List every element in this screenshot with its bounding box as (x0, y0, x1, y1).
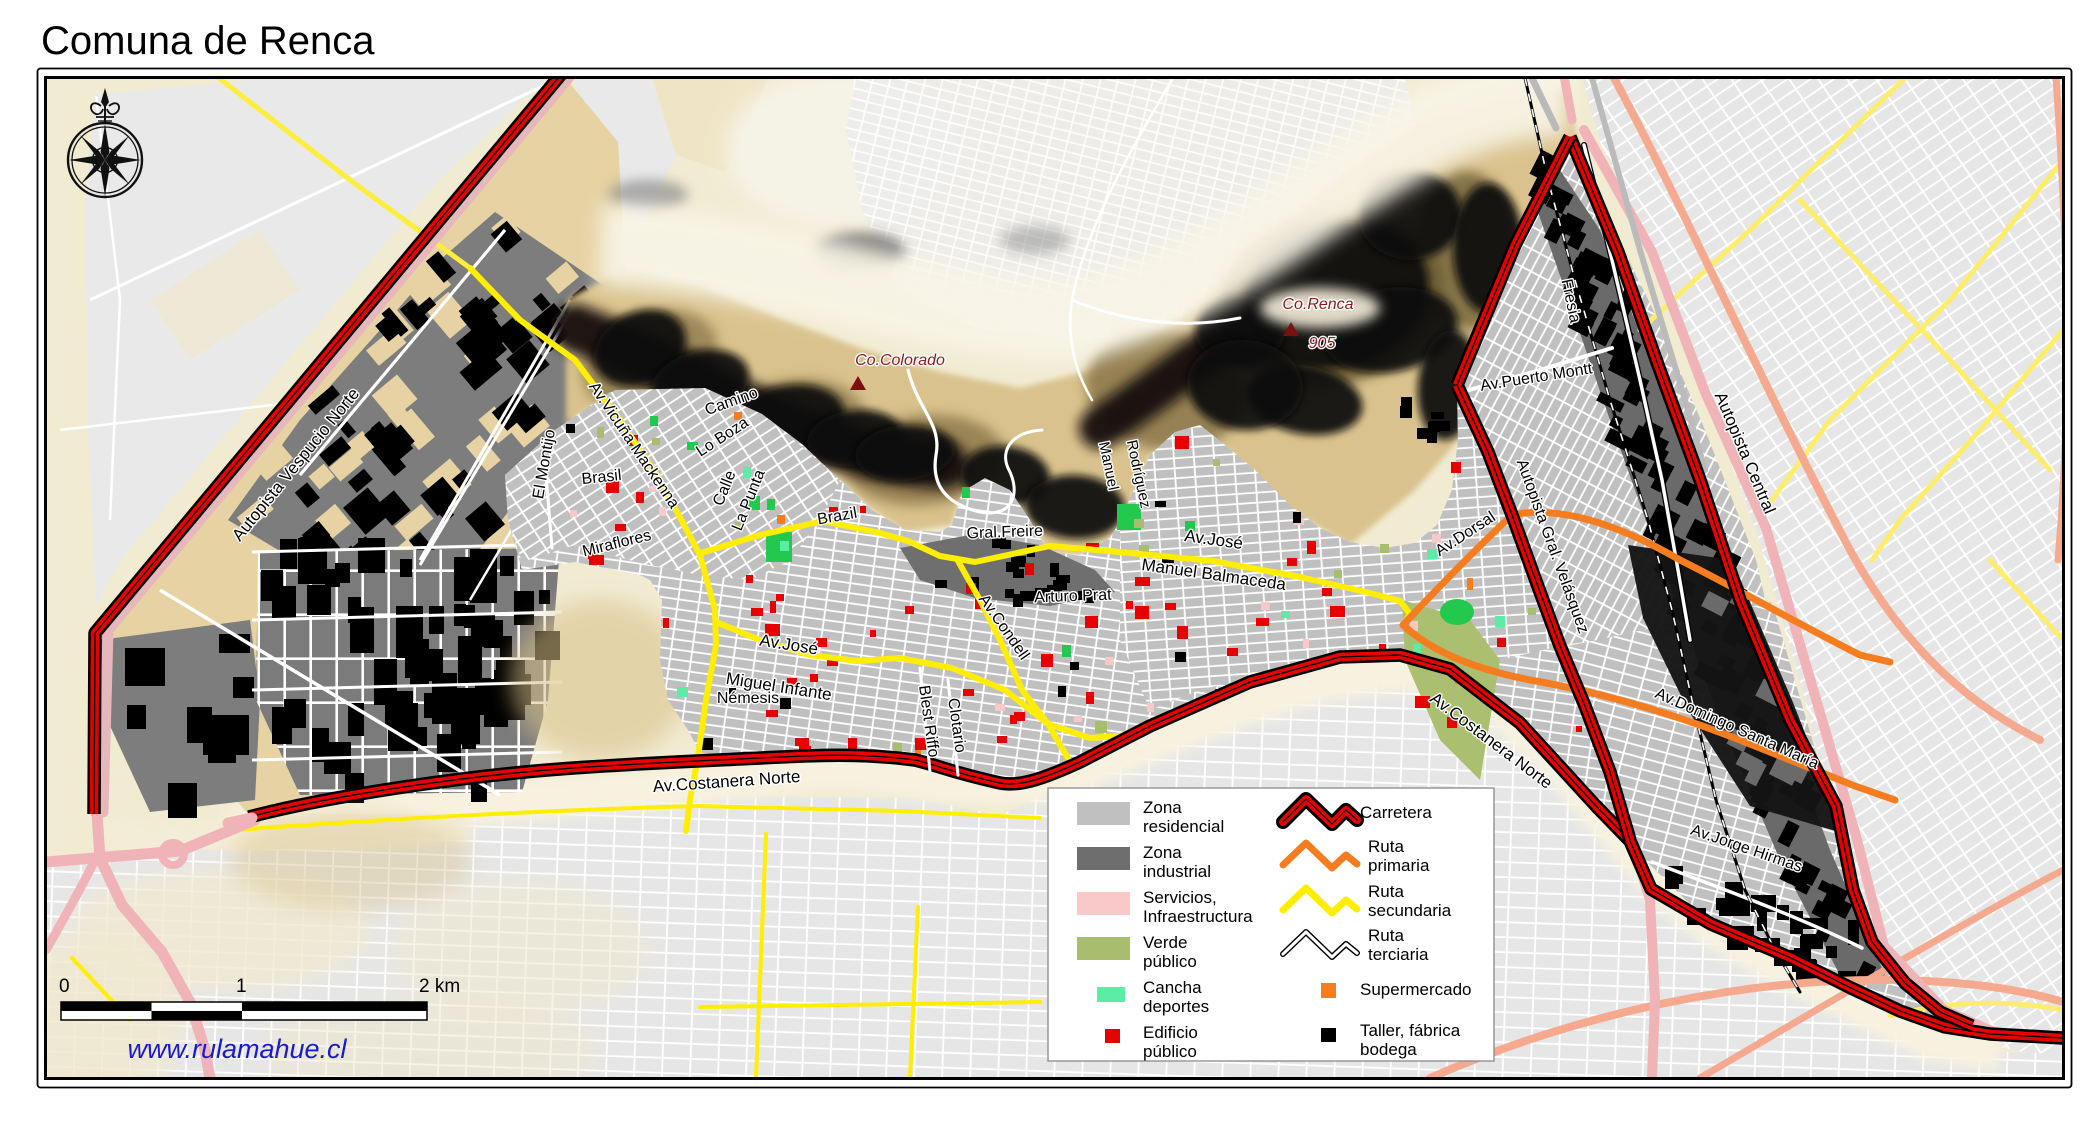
svg-text:Supermercado: Supermercado (1360, 980, 1472, 999)
svg-text:residencial: residencial (1143, 817, 1224, 836)
svg-text:Cancha: Cancha (1143, 978, 1202, 997)
svg-text:Zona: Zona (1143, 843, 1182, 862)
svg-text:0: 0 (59, 976, 70, 997)
svg-text:Infraestructura: Infraestructura (1143, 907, 1253, 926)
svg-text:deportes: deportes (1143, 997, 1209, 1016)
svg-text:Taller, fábrica: Taller, fábrica (1360, 1021, 1461, 1040)
svg-text:Ruta: Ruta (1368, 882, 1404, 901)
svg-text:1: 1 (236, 976, 247, 997)
svg-text:Servicios,: Servicios, (1143, 888, 1217, 907)
svg-text:terciaria: terciaria (1368, 945, 1429, 964)
svg-text:industrial: industrial (1143, 862, 1211, 881)
svg-text:www.rulamahue.cl: www.rulamahue.cl (127, 1034, 347, 1064)
svg-text:Arturo Prat: Arturo Prat (1034, 587, 1112, 607)
svg-text:público: público (1143, 952, 1197, 971)
svg-text:Co.Colorado: Co.Colorado (855, 352, 945, 369)
svg-text:secundaria: secundaria (1368, 901, 1452, 920)
svg-text:Comuna de Renca: Comuna de Renca (41, 19, 375, 63)
svg-text:905: 905 (1309, 335, 1336, 352)
svg-text:bodega: bodega (1360, 1040, 1417, 1059)
svg-text:Zona: Zona (1143, 798, 1182, 817)
svg-text:Gral.Freire: Gral.Freire (966, 523, 1043, 543)
svg-text:Némesis: Némesis (717, 690, 779, 707)
svg-text:Carretera: Carretera (1360, 803, 1432, 822)
svg-text:2 km: 2 km (419, 976, 460, 997)
svg-text:Ruta: Ruta (1368, 837, 1404, 856)
svg-text:Edificio: Edificio (1143, 1023, 1198, 1042)
svg-text:Verde: Verde (1143, 933, 1187, 952)
svg-text:público: público (1143, 1042, 1197, 1061)
svg-text:primaria: primaria (1368, 856, 1430, 875)
svg-text:Ruta: Ruta (1368, 926, 1404, 945)
svg-text:Co.Renca: Co.Renca (1282, 296, 1353, 313)
